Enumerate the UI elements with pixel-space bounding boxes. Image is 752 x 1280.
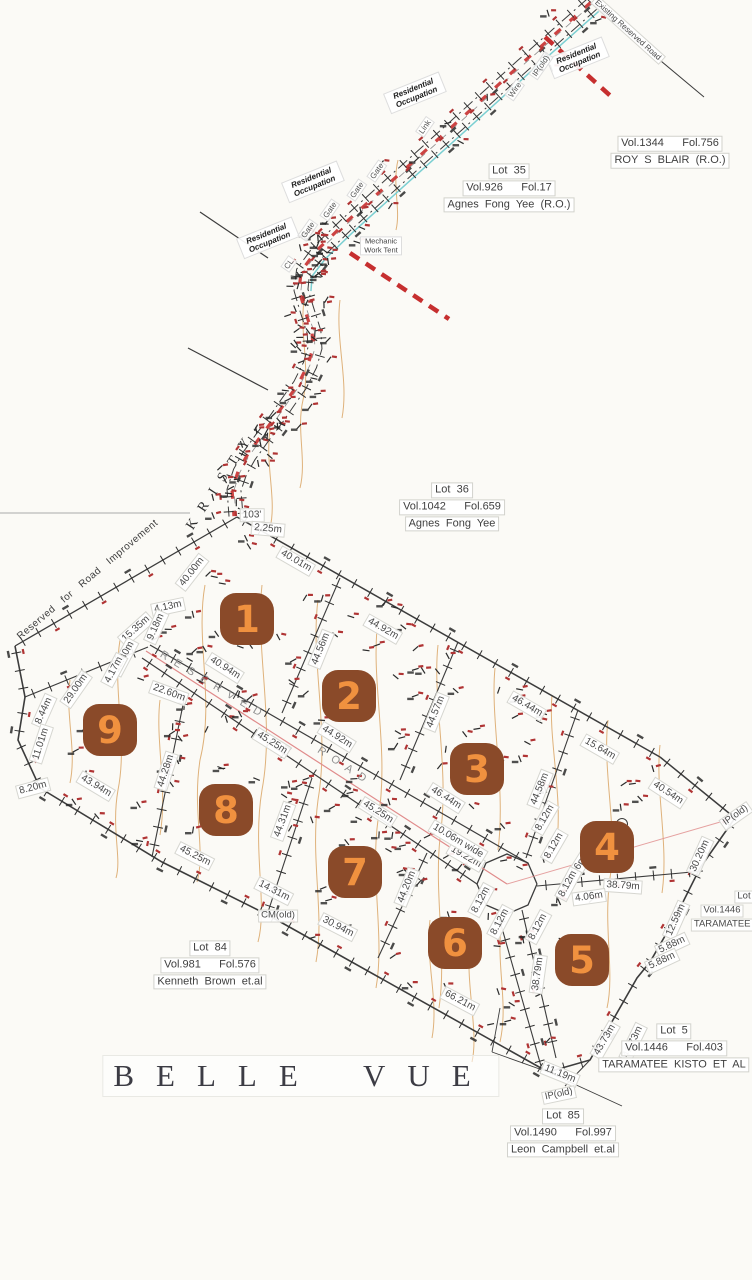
survey-ticks: [7, 0, 734, 1077]
survey-plan: 103'2.25m40.00m40.01m4.13m15.35m9.18m12.…: [0, 0, 752, 1280]
survey-marks: [66, 9, 661, 1043]
boundary-lines: [0, 0, 735, 1106]
road-lines: [227, 0, 614, 517]
contour-lines: [69, 160, 664, 1062]
area-title: BELLE VUE: [102, 1055, 499, 1097]
